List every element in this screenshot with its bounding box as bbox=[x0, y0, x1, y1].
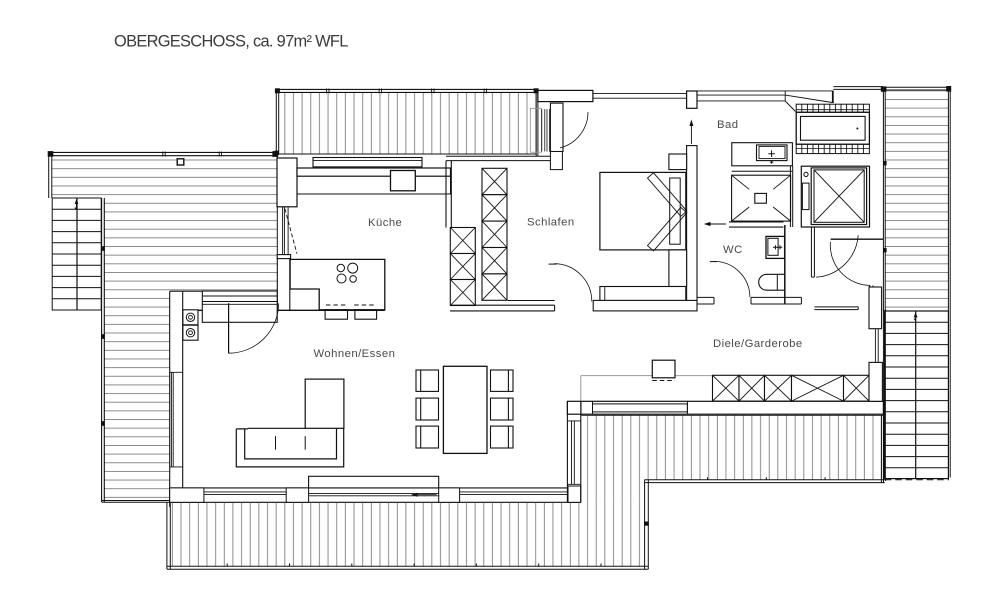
svg-text:Diele/Garderobe: Diele/Garderobe bbox=[713, 338, 803, 350]
svg-text:Küche: Küche bbox=[368, 217, 402, 229]
svg-text:OBERGESCHOSS, ca. 97m² WFL: OBERGESCHOSS, ca. 97m² WFL bbox=[114, 33, 348, 51]
svg-text:Schlafen: Schlafen bbox=[527, 217, 575, 229]
svg-text:WC: WC bbox=[723, 244, 743, 256]
svg-text:Wohnen/Essen: Wohnen/Essen bbox=[314, 348, 396, 360]
svg-text:Bad: Bad bbox=[717, 119, 738, 131]
